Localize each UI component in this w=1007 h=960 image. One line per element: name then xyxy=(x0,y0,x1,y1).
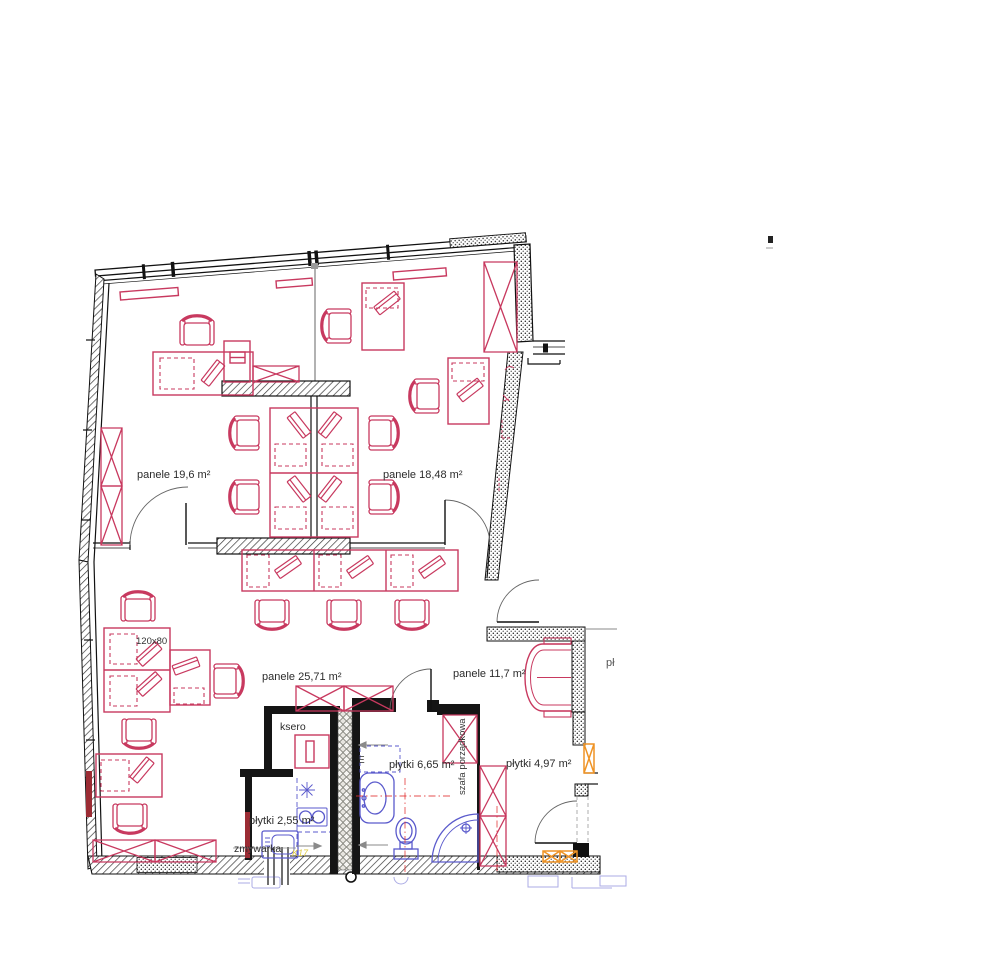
room-label-kitchenette: płytki 2,55 m² xyxy=(249,815,315,827)
cabinet-x xyxy=(101,486,122,545)
copier xyxy=(295,735,329,768)
electrical-marker-label: E xyxy=(358,755,365,766)
ventilation-shaft xyxy=(338,710,352,870)
cabinet-x xyxy=(253,366,299,382)
pipe-riser xyxy=(86,771,92,817)
desk-bottom-left xyxy=(96,754,162,797)
room-label-hall: płytki 4,97 m² xyxy=(506,758,572,770)
desk-office-b1 xyxy=(362,283,404,350)
yellow-code-label: K17 xyxy=(292,848,309,858)
cleaning-cabinet-label: szafa porządkowa xyxy=(457,718,468,795)
door-vestibule xyxy=(497,580,539,622)
floor-plan-drawing: panele 19,6 m² panele 18,48 m² panele 25… xyxy=(0,0,1007,960)
dishwasher-label: zmywarka xyxy=(234,843,281,855)
room-label-office-main: panele 25,71 m² xyxy=(262,671,342,683)
reference-mark xyxy=(766,236,773,249)
room-label-vestibule: panele 11,7 m² xyxy=(453,668,526,680)
radiator xyxy=(393,268,446,280)
ghost-fixtures xyxy=(238,876,626,888)
desk-size-label: 120x80 xyxy=(136,636,167,647)
washbasin xyxy=(360,746,400,823)
labels: panele 19,6 m² panele 18,48 m² panele 25… xyxy=(136,469,615,858)
top-window-wall xyxy=(95,233,527,285)
room-label-bathroom: płytki 6,65 m² xyxy=(389,759,455,771)
shower xyxy=(432,814,478,862)
sofa xyxy=(525,638,571,717)
light-symbol xyxy=(299,782,315,798)
door-hall xyxy=(535,796,588,843)
door-office-top-left xyxy=(130,487,188,545)
radiator xyxy=(276,278,312,288)
toilet xyxy=(394,818,418,859)
room-label-office-top-right: panele 18,48 m² xyxy=(383,469,463,481)
desk-cluster-center xyxy=(270,408,358,537)
room-label-office-top-left: panele 19,6 m² xyxy=(137,469,211,481)
cabinet-x xyxy=(101,428,122,486)
truncated-room-label: pł xyxy=(606,657,615,669)
desk-office-b2 xyxy=(448,358,489,424)
door-office-top-right xyxy=(445,500,490,545)
copier-label: ksero xyxy=(280,721,306,733)
cabinet-x xyxy=(480,766,506,816)
door-bathroom xyxy=(390,669,431,710)
wardrobe-x xyxy=(484,262,517,352)
desk-row-main xyxy=(242,550,458,591)
floor-plan-canvas: panele 19,6 m² panele 18,48 m² panele 25… xyxy=(0,0,1007,960)
radiator xyxy=(120,287,178,300)
